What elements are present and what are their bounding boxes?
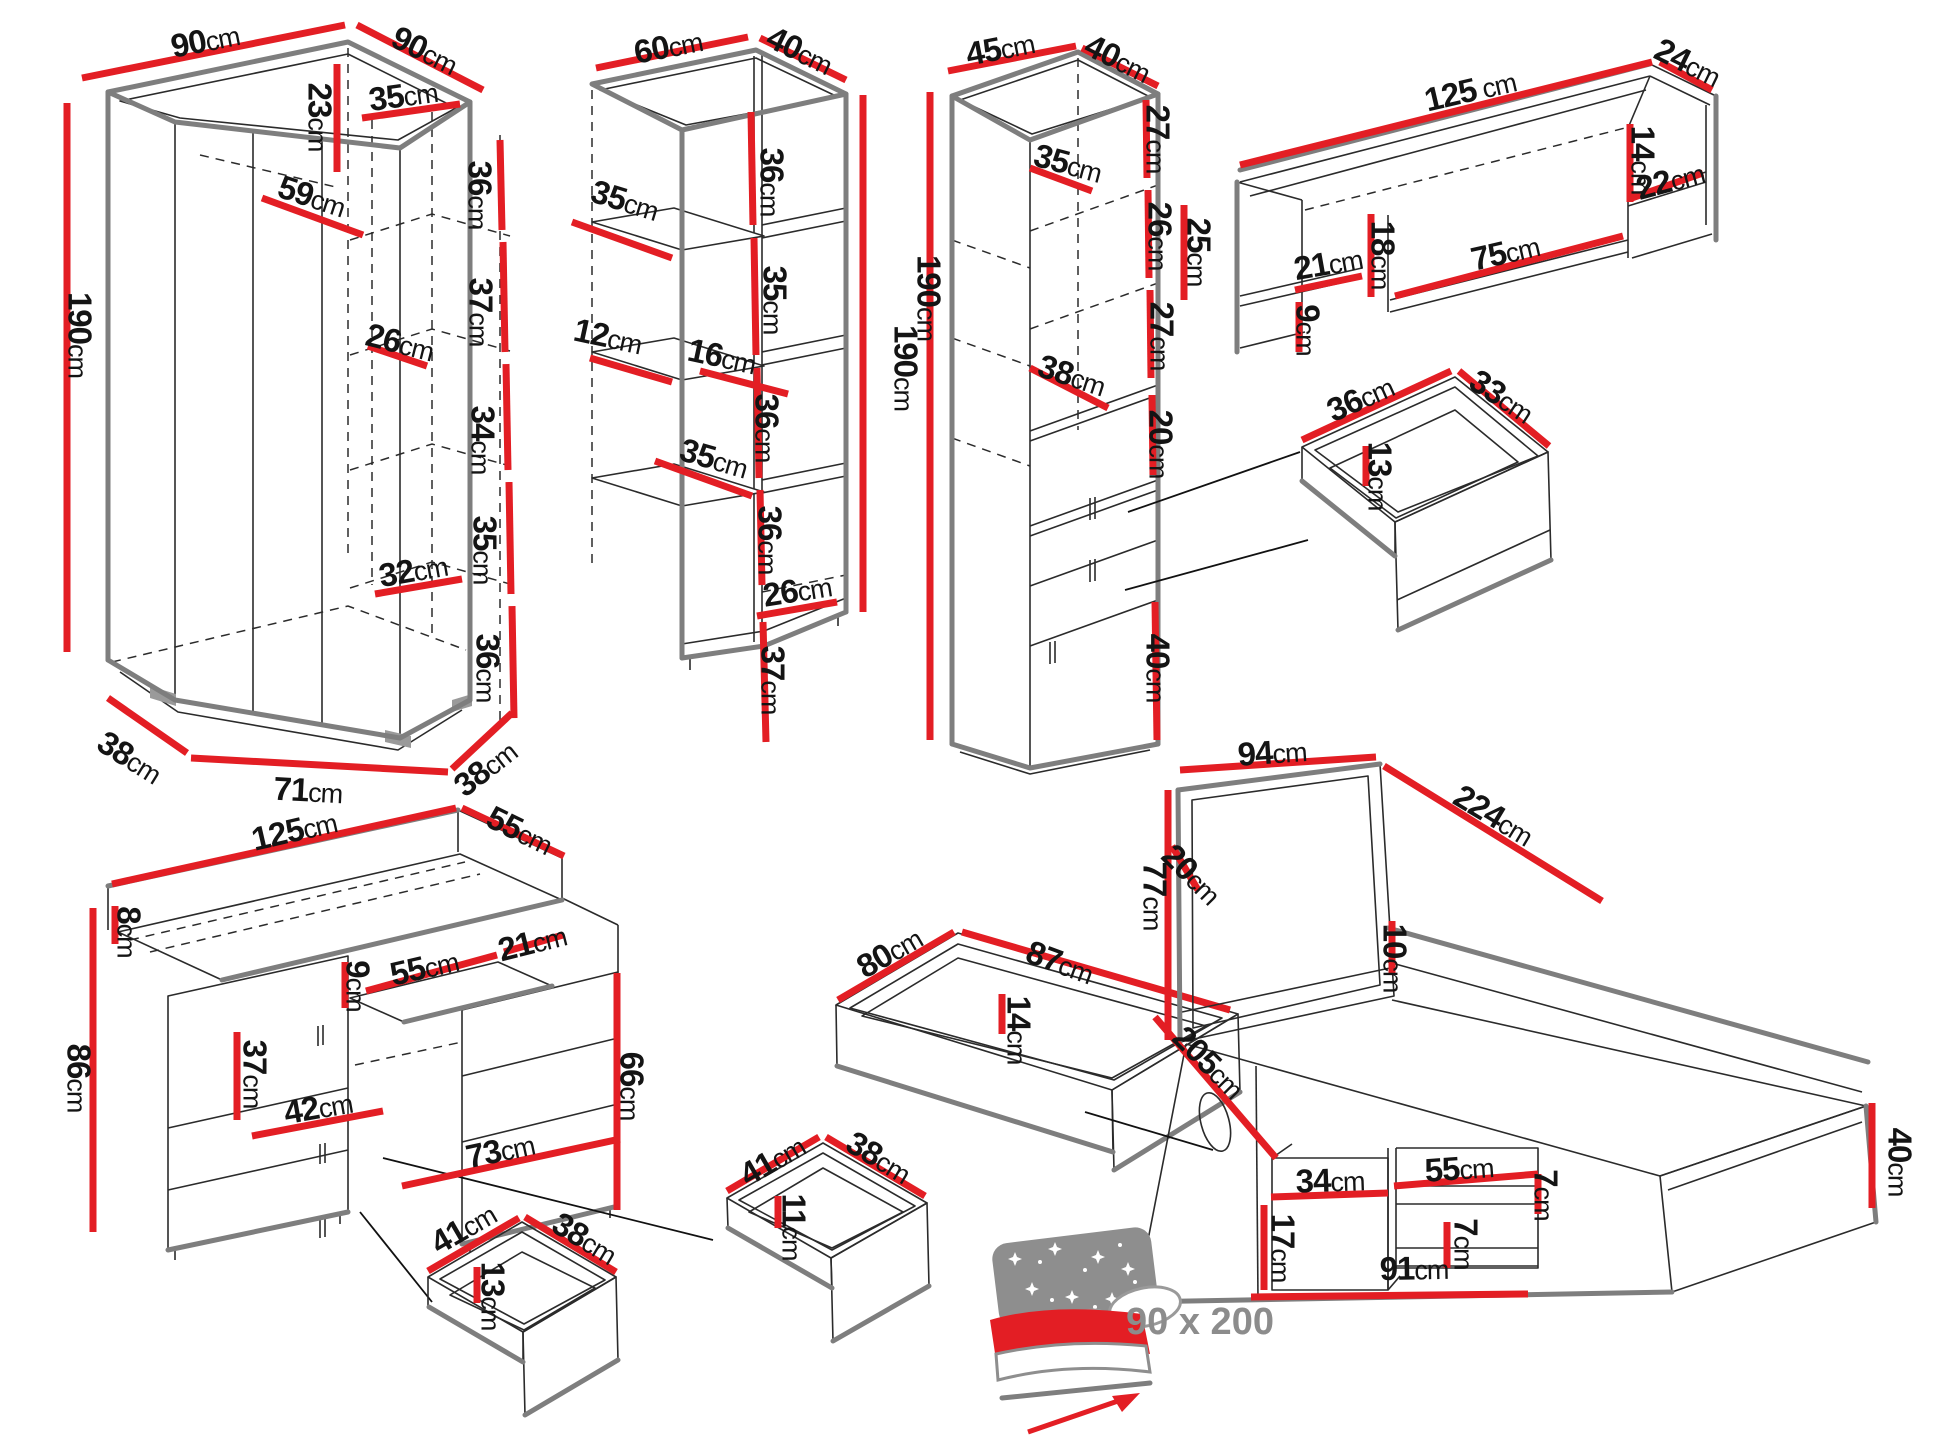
- furniture-line-art: [0, 0, 1940, 1455]
- drawer-41x38x13-drawing: [428, 1217, 618, 1415]
- diagram-canvas: 90cm90cm35cm23cm59cm190cm36cm37cm26cm34c…: [0, 0, 1940, 1455]
- drawer-41x38x11-drawing: [727, 1137, 929, 1341]
- open-shelf-unit-drawing: [572, 37, 863, 742]
- tall-cabinet-drawing: [930, 46, 1308, 774]
- desk-drawing: [93, 808, 713, 1302]
- bed-size-icon: [990, 1226, 1184, 1432]
- wall-shelf-drawing: [1184, 62, 1716, 352]
- drawer-36x33-drawing: [1302, 371, 1551, 630]
- bed-drawing: [1085, 757, 1876, 1302]
- corner-wardrobe-drawing: [67, 25, 514, 772]
